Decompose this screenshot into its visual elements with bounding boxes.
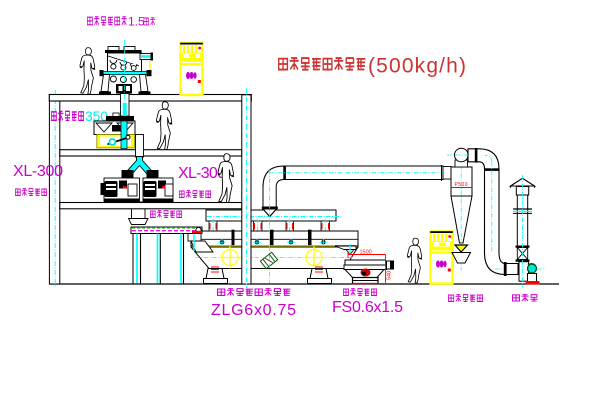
svg-text:ZLG6x0.75: ZLG6x0.75 <box>211 302 296 319</box>
svg-text:1.5: 1.5 <box>128 15 145 29</box>
svg-text:FS0.6x1.5: FS0.6x1.5 <box>332 299 403 316</box>
svg-text:XL-300: XL-300 <box>13 163 63 180</box>
svg-text:540: 540 <box>387 271 393 280</box>
svg-text:(500kg/h): (500kg/h) <box>368 55 466 78</box>
svg-text:1500: 1500 <box>360 250 372 256</box>
